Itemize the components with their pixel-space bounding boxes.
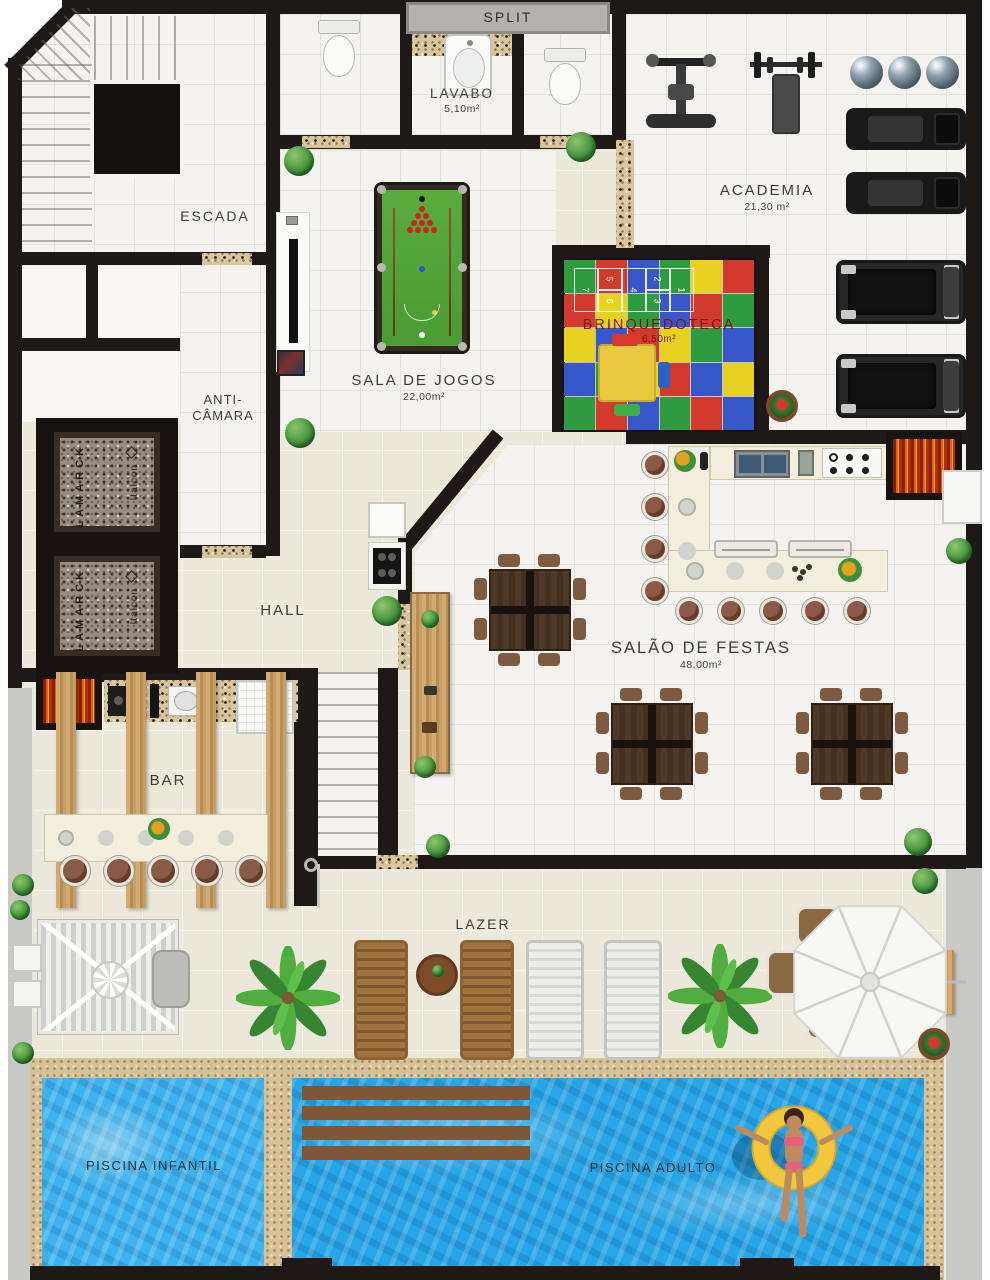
- sideboard-decor: [422, 722, 437, 733]
- bar-stool: [60, 856, 90, 886]
- kitchen-sink: [734, 450, 790, 478]
- sink-faucet: [467, 40, 473, 46]
- wall-left-mid: [8, 252, 22, 688]
- lat-base: [646, 114, 716, 128]
- wall-brinquedoteca-top: [552, 245, 770, 258]
- dining-table: [474, 554, 586, 666]
- ball-white: [419, 332, 425, 338]
- treadmill: [836, 354, 966, 418]
- sala-jogos-area: 22,00m²: [344, 391, 504, 404]
- dining-chairs-horizontal: [820, 688, 842, 701]
- sink-basin-right: [764, 455, 786, 473]
- plant-bush: [10, 900, 30, 920]
- bar-stool: [802, 598, 828, 624]
- barbell-plates-inner: [767, 57, 773, 73]
- room-label-lazer: LAZER: [428, 916, 538, 934]
- cooktop-unit: [368, 542, 406, 590]
- food-platter: [838, 558, 862, 582]
- italcon-logo-icon: [125, 570, 138, 583]
- room-label-split: SPLIT: [406, 9, 610, 27]
- sun-lounger-white: [604, 940, 662, 1060]
- salao-name: SALÃO DE FESTAS: [611, 639, 791, 657]
- plant-bush: [284, 146, 314, 176]
- shower-pole: [317, 864, 320, 908]
- plant-bush: [566, 132, 596, 162]
- sun-lounger-wood: [460, 940, 514, 1060]
- gazebo-parasol-top: [91, 961, 129, 999]
- counter-niche: [942, 470, 982, 524]
- plant-bush: [285, 418, 315, 448]
- garden-bench: [12, 980, 42, 1008]
- bar-stool: [236, 856, 266, 886]
- sill-wc1-door: [302, 136, 350, 148]
- wall-academia-left: [612, 14, 626, 140]
- pergola-beam: [266, 672, 286, 908]
- wall-pool-tab-2: [740, 1258, 794, 1280]
- bar-stool: [642, 536, 668, 562]
- plant-bush: [372, 596, 402, 626]
- stove-burners: [829, 453, 838, 462]
- sun-lounger-wood: [354, 940, 408, 1060]
- side-table-plant: [432, 965, 444, 977]
- lat-pulldown-machine: [646, 52, 718, 142]
- mat-tile: [564, 397, 595, 430]
- mat-tile: [691, 397, 722, 430]
- floor-plan: PISCINA INFANTIL PISCINA ADULTO SPLIT ES…: [0, 0, 990, 1280]
- hopscotch: 7 5 6 4 2 3 1: [574, 268, 702, 312]
- mat-tile: [723, 397, 754, 430]
- outdoor-shower: [304, 858, 328, 908]
- palm-tree: [668, 944, 772, 1048]
- sink-basin-left: [739, 455, 761, 473]
- wall-right: [966, 0, 982, 868]
- sideboard-plant: [421, 610, 439, 628]
- plant-bush: [946, 538, 972, 564]
- ball-black: [419, 196, 425, 202]
- weight-bench: [846, 172, 966, 214]
- room-label-piscina-adulto: PISCINA ADULTO: [558, 1160, 748, 1176]
- side-table: [416, 954, 458, 996]
- room-label-sala-de-jogos: SALA DE JOGOS 22,00m²: [344, 372, 504, 404]
- speaker-box: [277, 350, 305, 376]
- hopscotch-pair: 5 6: [598, 268, 622, 312]
- room-label-bar: BAR: [128, 772, 208, 791]
- brinquedoteca-name: BRINQUEDOTECA: [583, 317, 736, 333]
- bar-stool: [104, 856, 134, 886]
- hopscotch-cell: 1: [670, 268, 694, 312]
- room-label-brinquedoteca: BRINQUEDOTECA 6,50m²: [566, 316, 752, 347]
- pool-deck-sand-left: [30, 1058, 42, 1280]
- plant-bush: [12, 1042, 34, 1064]
- bar-stool: [642, 452, 668, 478]
- weight-bench: [846, 108, 966, 150]
- bottle: [700, 452, 708, 470]
- stair-treads-left: [22, 64, 92, 250]
- cue-stick: [393, 208, 395, 336]
- wall-pool-bottom: [30, 1266, 940, 1280]
- tv-cabinet: [276, 212, 310, 372]
- hopscotch-pair: 2 3: [646, 268, 670, 312]
- sun-lounger-white: [526, 940, 584, 1060]
- sill-anti-camara-bottom: [202, 546, 252, 558]
- dining-table-top: [611, 703, 693, 785]
- mat-tile: [691, 363, 722, 396]
- toilet-bowl: [323, 35, 355, 77]
- sala-jogos-name: SALA DE JOGOS: [351, 372, 496, 389]
- kids-chair-blue: [658, 362, 670, 388]
- palm-tree: [236, 946, 340, 1050]
- sill-lazer-door: [376, 855, 418, 869]
- salao-area: 48,00m²: [596, 659, 806, 672]
- dining-chairs-vertical: [474, 578, 487, 600]
- bar-stool: [642, 494, 668, 520]
- toilet: [318, 20, 360, 80]
- dining-chairs-vertical: [596, 712, 609, 734]
- elevator-brand: LAMARCK: [74, 568, 86, 652]
- ball-rack-red: [419, 206, 425, 212]
- bar-menu-strip: [150, 684, 159, 718]
- room-label-lavabo: LAVABO 5,10m²: [402, 86, 522, 116]
- plant-bush: [912, 868, 938, 894]
- bench-press: [750, 50, 822, 146]
- chafing-dish: [788, 540, 852, 558]
- academia-area: 21,30 m²: [672, 201, 862, 214]
- elevator-sub-brand: Italcon: [129, 464, 140, 500]
- stove-six-burner: [822, 448, 882, 478]
- treadmill-caps: [841, 359, 856, 368]
- mat-tile: [723, 363, 754, 396]
- chafing-dish: [714, 540, 778, 558]
- bar-stool: [148, 856, 178, 886]
- plant-bush: [426, 834, 450, 858]
- dining-table-top: [489, 569, 571, 651]
- sink-basin: [174, 691, 198, 711]
- dining-chairs-horizontal: [620, 688, 642, 701]
- kids-table: [598, 344, 656, 402]
- room-label-hall: HALL: [238, 602, 328, 621]
- fruit-platter: [674, 450, 696, 472]
- wall-left-upper: [8, 58, 22, 254]
- treadmill: [836, 260, 966, 324]
- room-label-escada: ESCADA: [150, 208, 280, 226]
- hopscotch-cell: 7: [574, 268, 598, 312]
- elevator-cabin: LAMARCK Italcon: [54, 556, 160, 656]
- treadmill-caps: [841, 265, 856, 274]
- plant-bush: [414, 756, 436, 778]
- dining-chairs-horizontal: [498, 554, 520, 567]
- stair-core: [94, 84, 180, 174]
- dining-table: [796, 688, 908, 800]
- anti-camara-line1: ANTI-: [204, 392, 243, 407]
- hopscotch-cell: 6: [598, 290, 622, 312]
- anti-camara-line2: CÂMARA: [192, 408, 254, 423]
- pool-wood-steps: [302, 1086, 530, 1164]
- dining-table: [596, 688, 708, 800]
- sink-basin: [453, 48, 485, 88]
- pool-deck-sand-divider: [264, 1058, 292, 1280]
- wall-pool-tab-1: [282, 1258, 332, 1280]
- security-camera-icon: [286, 216, 298, 225]
- bench: [772, 74, 800, 134]
- cooktop-burners: [373, 548, 401, 584]
- burner-dots: [378, 553, 386, 561]
- bar-stool: [718, 598, 744, 624]
- mat-tile: [723, 260, 754, 293]
- room-label-piscina-infantil: PISCINA INFANTIL: [64, 1158, 244, 1174]
- plant-bush: [904, 828, 932, 856]
- bar-stool: [760, 598, 786, 624]
- toilet-tank: [544, 48, 586, 62]
- elevator-sub-brand: Italcon: [129, 588, 140, 624]
- tv-screen: [289, 239, 298, 343]
- elevator-cabin: LAMARCK Italcon: [54, 432, 160, 532]
- place-setting: [678, 498, 696, 516]
- potted-plant: [918, 1028, 950, 1060]
- academia-name: ACADEMIA: [720, 182, 814, 199]
- room-label-salao-de-festas: SALÃO DE FESTAS 48,00m²: [596, 638, 806, 672]
- garden-bench: [12, 944, 42, 972]
- bar-stool: [676, 598, 702, 624]
- place-setting: [686, 562, 704, 580]
- sideboard-decor: [424, 686, 437, 695]
- elevator-brand: LAMARCK: [74, 444, 86, 528]
- mini-fridge: [368, 502, 406, 538]
- bar-stool: [642, 578, 668, 604]
- toilet: [544, 48, 586, 108]
- sill-academia-left: [616, 140, 634, 248]
- mat-tile: [660, 397, 691, 430]
- hopscotch-cell: 5: [598, 268, 622, 290]
- wall-stairs-right: [378, 668, 398, 860]
- lavabo-name: LAVABO: [430, 86, 494, 101]
- room-label-anti-camara: ANTI- CÂMARA: [180, 392, 266, 425]
- exercise-ball: [850, 56, 883, 89]
- barbell-plates-outer: [754, 52, 761, 78]
- room-label-academia: ACADEMIA 21,30 m²: [672, 182, 862, 214]
- brinquedoteca-area: 6,50m²: [566, 334, 752, 347]
- sideboard: [410, 592, 450, 774]
- wall-left-rooms-v: [86, 252, 98, 344]
- hopscotch-cell: 3: [646, 290, 670, 312]
- dining-chairs-vertical: [796, 712, 809, 734]
- ball-blue: [419, 266, 425, 272]
- mat-tile: [564, 363, 595, 396]
- toilet-bowl: [549, 63, 581, 105]
- lat-seat: [668, 84, 694, 100]
- table-pocket: [377, 185, 386, 194]
- pool-table: [374, 182, 470, 354]
- food-platter: [148, 818, 170, 840]
- italcon-logo-icon: [125, 446, 138, 459]
- dining-table-top: [811, 703, 893, 785]
- place-setting: [58, 830, 74, 846]
- lavabo-area: 5,10m²: [402, 103, 522, 116]
- hopscotch-cell: 4: [622, 268, 646, 312]
- gazebo-chair: [152, 950, 190, 1008]
- bar-stool: [844, 598, 870, 624]
- cutlery-decor: [792, 566, 798, 572]
- trash-bin: [798, 450, 814, 476]
- stair-treads-top: [94, 16, 178, 80]
- shower-head: [304, 858, 318, 872]
- service-stairs: [318, 672, 378, 856]
- sill-anti-camara-top: [202, 253, 252, 265]
- bar-stool: [192, 856, 222, 886]
- pool-deck-sand-right: [924, 1058, 944, 1280]
- exercise-ball: [888, 56, 921, 89]
- lat-handle: [646, 54, 659, 67]
- exercise-ball: [926, 56, 959, 89]
- potted-plant: [766, 390, 798, 422]
- toilet-tank: [318, 20, 360, 34]
- kids-chair-green: [614, 404, 640, 416]
- cue-stick: [449, 208, 451, 336]
- hopscotch-cell: 2: [646, 268, 670, 290]
- plant-bush: [12, 874, 34, 896]
- bar-stove-burners: [114, 696, 123, 705]
